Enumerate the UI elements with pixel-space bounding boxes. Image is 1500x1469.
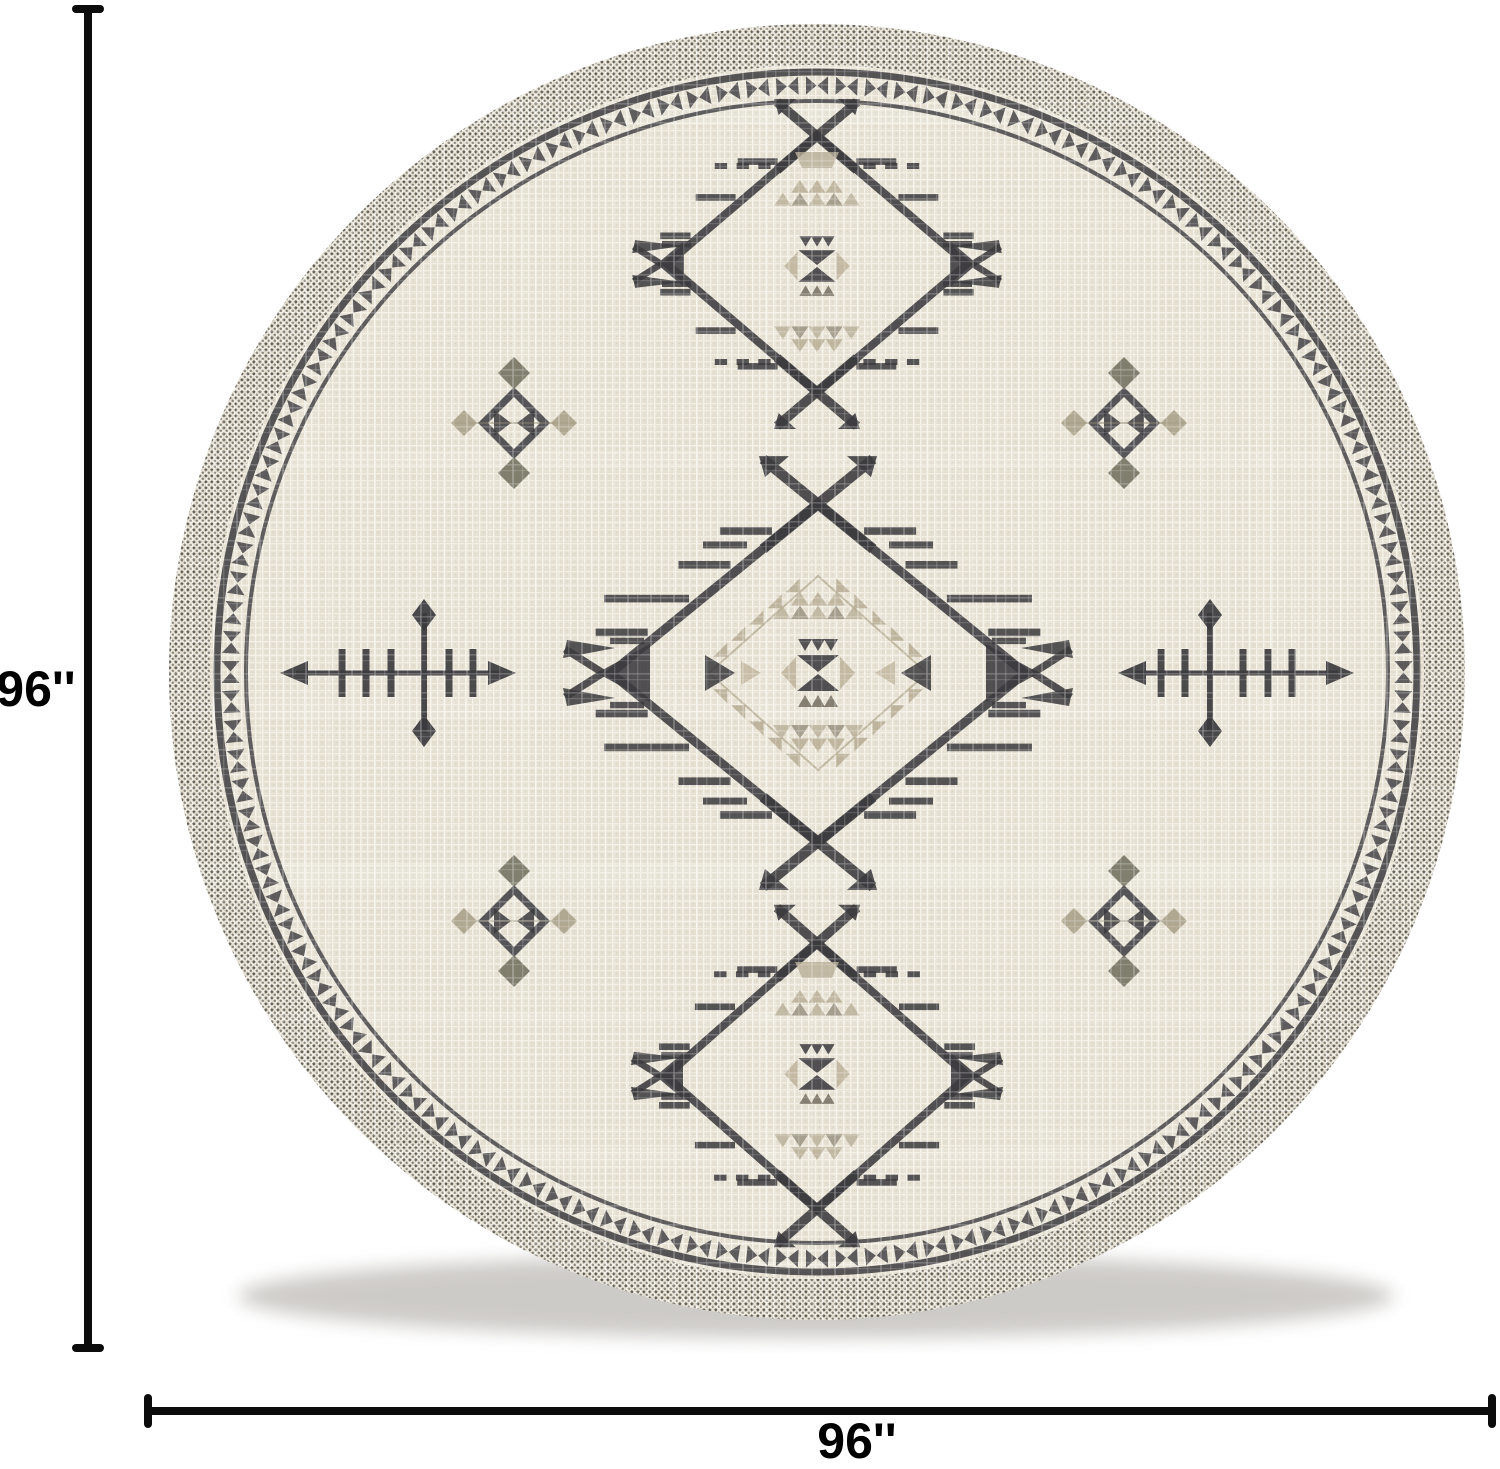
svg-text:96'': 96'' (817, 1413, 896, 1464)
svg-text:96'': 96'' (0, 661, 76, 717)
